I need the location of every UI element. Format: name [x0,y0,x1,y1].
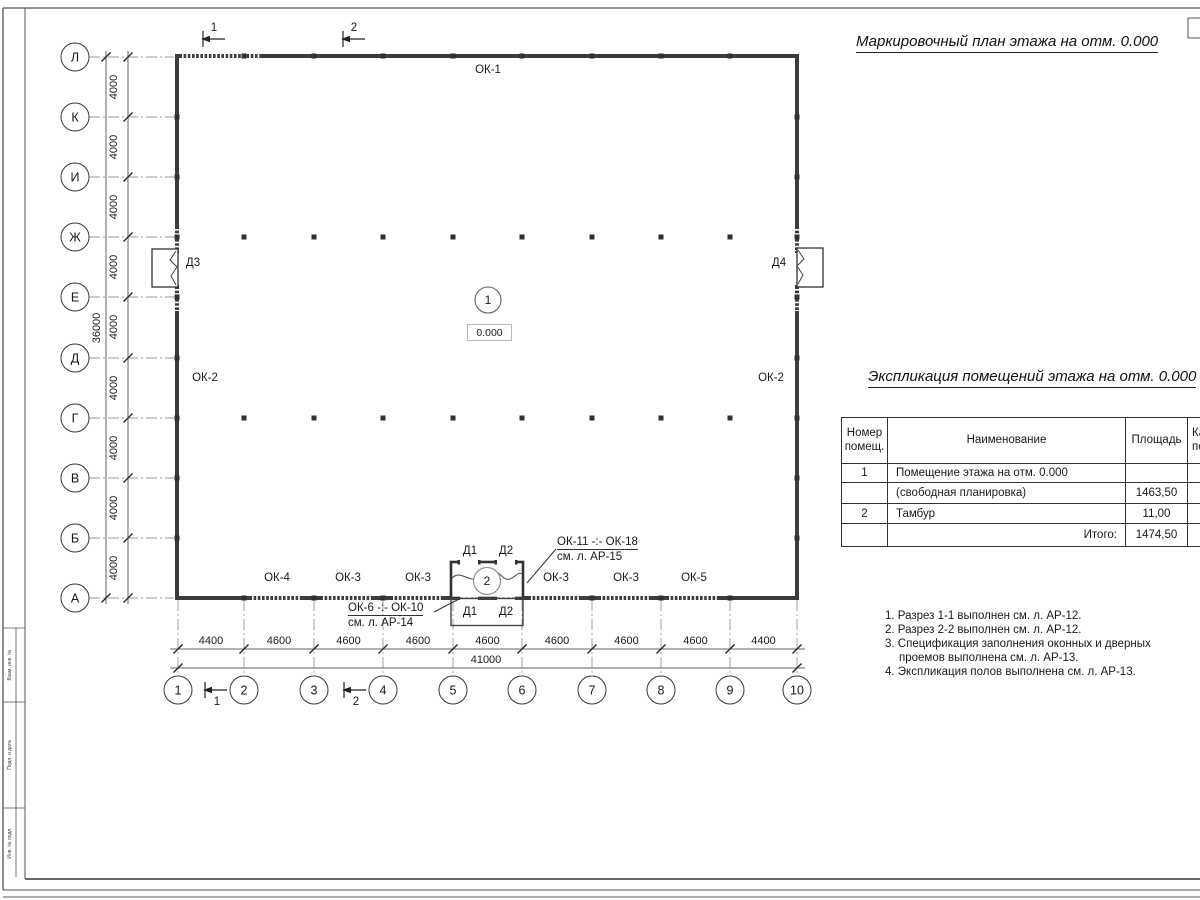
door-label-d2: Д2 [499,606,513,618]
table-cell-category [1188,483,1200,504]
note-line: 1. Разрез 1-1 выполнен см. л. АР-12. [885,610,1082,622]
axis-row-bubble: Б [61,524,90,553]
axis-row-bubble: Л [61,43,90,72]
header-number-line1: Номер [847,427,882,440]
dim-row: 4000 [108,376,120,400]
dim-row: 4000 [108,135,120,159]
callout-upper-sheet: см. л. АР-15 [557,551,622,563]
table-cell-num [842,483,888,504]
door-label-d1: Д1 [463,606,477,618]
room-1-marker: 1 [485,293,492,307]
table-cell-name: Тамбур [888,504,1126,524]
table-cell-area: 1463,50 [1126,483,1188,504]
window-label-bottom: ОК-3 [335,572,361,584]
elevation-mark: 0.000 [467,324,512,341]
dim-col: 4600 [267,635,291,647]
dim-col: 4600 [683,635,707,647]
dim-col: 4600 [475,635,499,647]
table-cell-total-label: Итого: [888,524,1126,546]
window-label-bottom: ОК-5 [681,572,707,584]
window-label-bottom: ОК-3 [613,572,639,584]
door-label-d1: Д1 [463,545,477,557]
axis-col-bubble: 4 [369,676,398,705]
note-line: 4. Экспликация полов выполнена см. л. АР… [885,666,1136,678]
dim-row: 4000 [108,195,120,219]
header-name: Наименование [967,434,1047,447]
section-label-1: 1 [214,696,220,708]
axis-extension-lines [89,57,797,677]
section-label-1: 1 [211,22,217,34]
dim-col: 4600 [545,635,569,647]
window-label-right: ОК-2 [758,372,784,384]
note-line: 3. Спецификация заполнения оконных и две… [885,638,1151,650]
axis-col-bubble: 9 [716,676,745,705]
table-header-name: Наименование [888,418,1126,464]
dim-col-total: 41000 [471,654,502,666]
frame-side-label: Подп. и дата [7,740,13,769]
axis-col-bubble: 5 [439,676,468,705]
axis-row-bubble: А [61,584,90,613]
dim-row: 4000 [108,496,120,520]
table-cell-name: (свободная планировка) [888,483,1126,504]
axis-col-bubble: 1 [164,676,193,705]
table-cell-num [842,524,888,546]
dim-col: 4400 [199,635,223,647]
dim-col: 4600 [336,635,360,647]
dim-row: 4000 [108,315,120,339]
note-line: 2. Разрез 2-2 выполнен см. л. АР-12. [885,624,1082,636]
table-cell-area: 11,00 [1126,504,1188,524]
header-category-line2: по [1192,441,1200,454]
drawing-sheet: Маркировочный план этажа на отм. 0.000 Э… [0,0,1200,900]
door-label-d4: Д4 [772,257,786,269]
axis-row-bubble: К [61,103,90,132]
table-cell-category [1188,464,1200,483]
section-label-2: 2 [351,22,357,34]
header-category-line1: Ка [1192,427,1200,440]
table-cell-name: Помещение этажа на отм. 0.000 [888,464,1126,483]
window-label-left: ОК-2 [192,372,218,384]
axis-col-bubble: 2 [230,676,259,705]
window-label-bottom: ОК-3 [405,572,431,584]
axis-col-bubble: 10 [783,676,812,705]
dim-col: 4600 [614,635,638,647]
door-label-d3: Д3 [186,257,200,269]
axis-row-bubble: И [61,163,90,192]
axis-row-bubble: Е [61,283,90,312]
axis-row-bubble: Г [61,404,90,433]
window-label-bottom: ОК-4 [264,572,290,584]
table-header-area: Площадь [1126,418,1188,464]
door-d3 [152,249,180,287]
plan-title: Маркировочный план этажа на отм. 0.000 [856,33,1158,53]
dim-row: 4000 [108,556,120,580]
dim-row: 4000 [108,255,120,279]
table-cell-category [1188,524,1200,546]
door-label-d2: Д2 [499,545,513,557]
door-d4 [794,248,823,287]
dim-row-total: 36000 [91,313,103,344]
callout-lower-sheet: см. л. АР-14 [348,617,413,629]
axis-row-bubble: Д [61,344,90,373]
table-cell-category [1188,504,1200,524]
note-line: проемов выполнена см. л. АР-13. [899,652,1078,664]
dim-row: 4000 [108,75,120,99]
table-cell-num: 2 [842,504,888,524]
dim-col: 4600 [406,635,430,647]
axis-row-bubble: Ж [61,223,90,252]
table-cell-num: 1 [842,464,888,483]
callout-lower-range: ОК-6 -:- ОК-10 [348,602,423,616]
schedule-title: Экспликация помещений этажа на отм. 0.00… [868,368,1196,388]
axis-col-bubble: 6 [508,676,537,705]
dim-col: 4400 [751,635,775,647]
section-label-2: 2 [353,696,359,708]
window-label-top: ОК-1 [475,64,501,76]
table-header-category: Ка по [1188,418,1200,464]
window-label-bottom: ОК-3 [543,572,569,584]
axis-col-bubble: 7 [578,676,607,705]
table-header-number: Номер помещ. [842,418,888,464]
dim-row: 4000 [108,436,120,460]
axis-row-bubble: В [61,464,90,493]
table-cell-total-area: 1474,50 [1126,524,1188,546]
axis-col-bubble: 3 [300,676,329,705]
callout-upper-range: ОК-11 -:- ОК-18 [557,536,638,550]
header-number-line2: помещ. [845,441,885,454]
table-cell-area [1126,464,1188,483]
header-area: Площадь [1131,434,1181,447]
elevation-value: 0.000 [476,327,502,339]
frame-side-label: Инв. № подл. [7,827,13,858]
axis-col-bubble: 8 [647,676,676,705]
room-schedule-table: Номер помещ. Наименование Площадь Ка по … [841,417,1200,547]
room-2-marker: 2 [484,574,491,588]
frame-side-label: Взам. инв. № [7,650,13,681]
